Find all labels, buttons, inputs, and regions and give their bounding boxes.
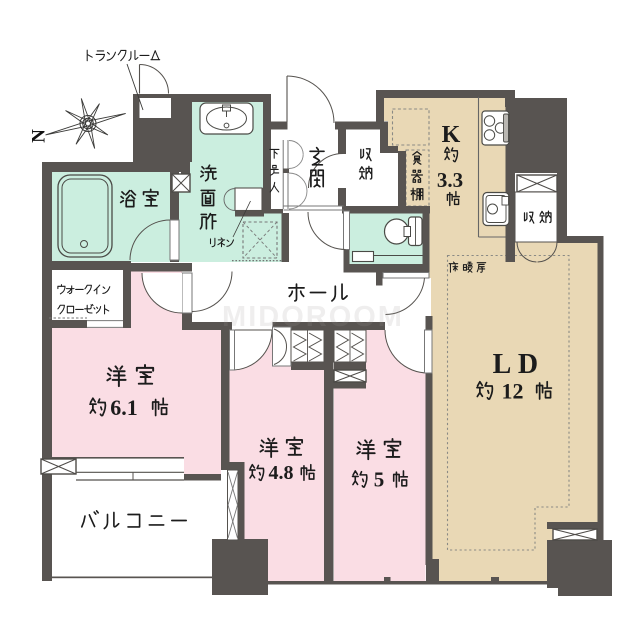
svg-text:12: 12 <box>502 379 524 404</box>
svg-text:6.1: 6.1 <box>110 395 138 420</box>
svg-text:D: D <box>518 349 538 380</box>
svg-text:4.8: 4.8 <box>269 462 294 484</box>
svg-text:5: 5 <box>374 468 385 492</box>
svg-text:N: N <box>29 129 50 143</box>
svg-text:3.3: 3.3 <box>437 168 463 192</box>
svg-text:K: K <box>442 122 461 148</box>
svg-text:MIDOROOM: MIDOROOM <box>222 301 404 333</box>
svg-text:L: L <box>493 349 512 380</box>
